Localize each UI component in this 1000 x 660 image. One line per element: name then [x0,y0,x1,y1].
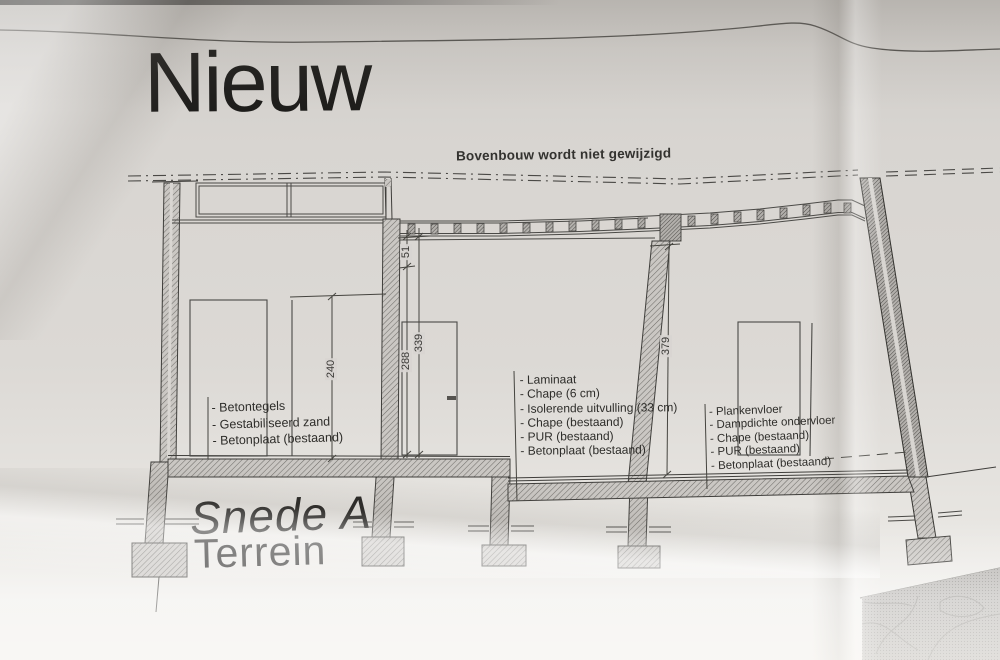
layer-list-right: - Plankenvloer - Dampdichte ondervloer -… [709,402,837,474]
beam-block [660,214,681,241]
layer-item: - Isolerende uitvulling (33 cm) [520,400,678,416]
drawing-title: Nieuw [144,39,371,126]
window-band [172,183,392,223]
photo-of-architectural-plan: Nieuw Bovenbouw wordt niet gewijzigd - B… [0,0,1000,660]
note-bovenbouw: Bovenbouw wordt niet gewijzigd [456,145,671,163]
terrain-label: Terrein [193,527,327,578]
layer-list-middle: - Laminaat - Chape (6 cm) - Isolerende u… [520,371,678,458]
dimension-379: 379 [660,335,672,357]
ceiling-joists [400,200,865,241]
dimension-51: 51 [400,244,412,260]
left-wall [132,181,198,612]
layer-item: - Betonplaat (bestaand) [520,443,678,459]
right-wall [860,178,952,565]
dimension-288: 288 [400,350,412,372]
dimension-339: 339 [413,332,425,354]
layer-list-left: - Betontegels - Gestabiliseerd zand - Be… [211,396,343,449]
dimension-240: 240 [325,358,337,380]
